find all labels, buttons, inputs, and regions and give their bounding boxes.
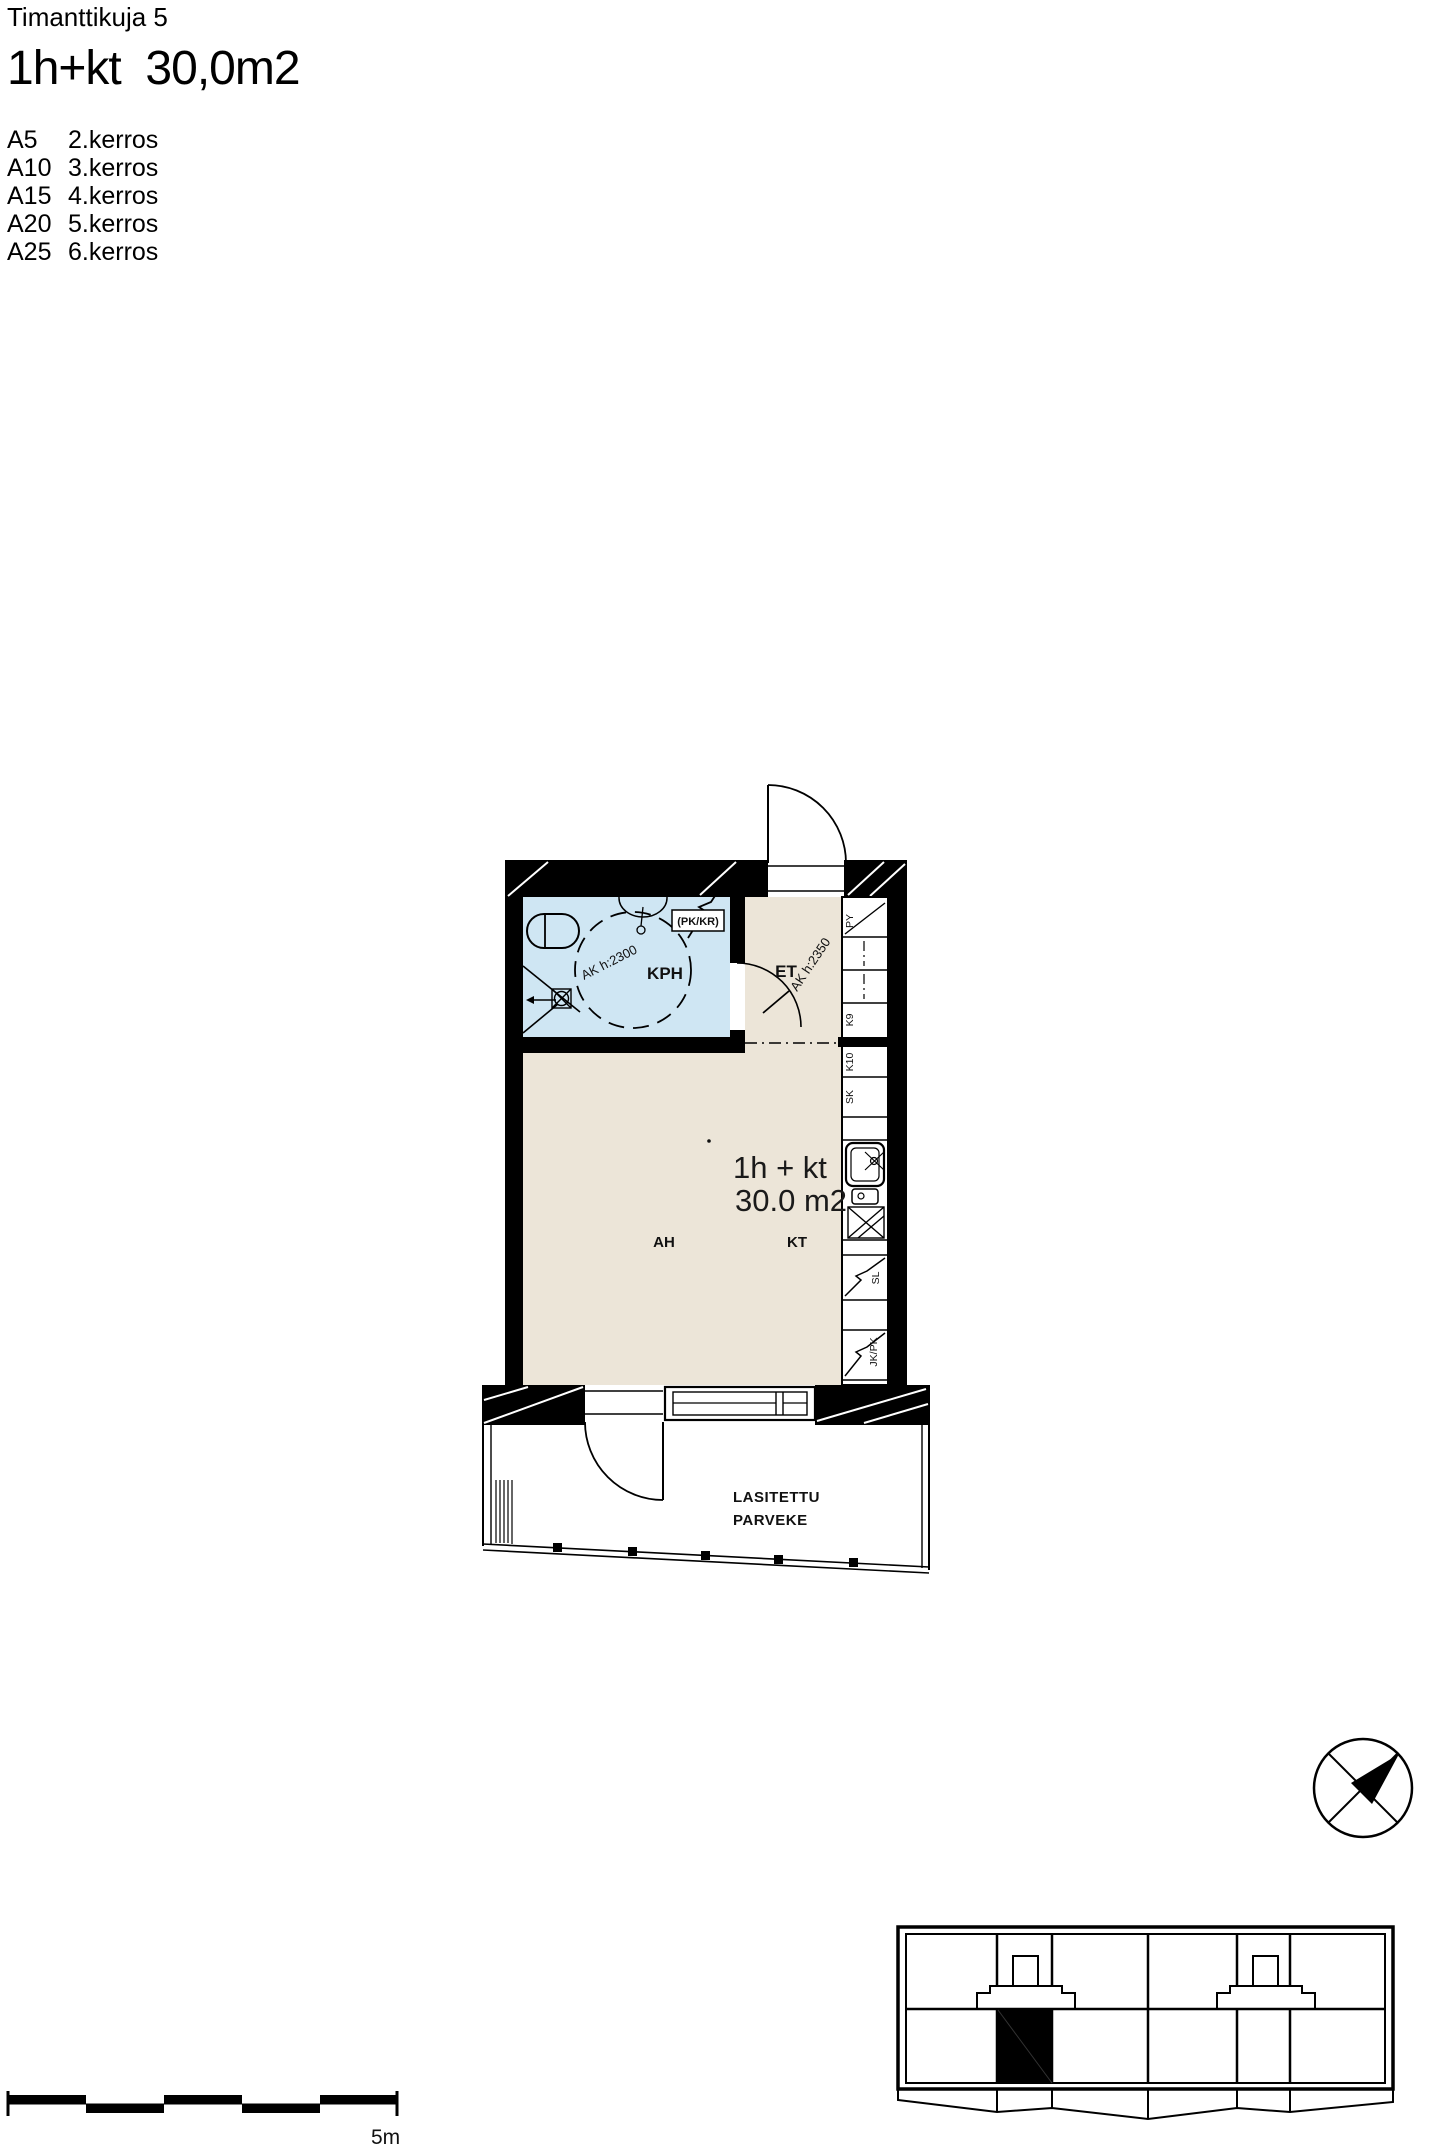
cabinet-k10-label: K10 [844,1053,856,1072]
area-label-line2: 30.0 m2 [735,1183,847,1218]
wall-kph-partition-upper [730,860,745,963]
area-label-line1: 1h + kt [733,1150,827,1185]
entrance-jamb [758,860,768,897]
wall-left [505,860,523,1405]
cabinet-sk-label: SK [844,1090,856,1104]
wall-kitchen-stub [838,1037,888,1047]
building-key-plan [898,1927,1393,2119]
scale-bar: 5m [8,2091,400,2145]
center-dot [707,1139,711,1143]
balcony-label-line2: PARVEKE [733,1512,808,1529]
cabinet-k9-label: K9 [844,1013,856,1026]
balcony-door-swing-arc [585,1422,663,1500]
floor-fills [523,897,888,1385]
living-label: AH [653,1234,675,1251]
compass-north-arrow [1351,1754,1399,1804]
stair-core [977,1956,1315,2008]
bathroom-label: KPH [647,964,683,983]
scale-bar-label: 5m [371,2126,400,2145]
balcony [483,1425,929,1573]
floorplan-sheet: Timanttikuja 5 1h+kt 30,0m2 A5 2.kerros … [0,0,1440,2145]
wall-right [888,860,907,1405]
balcony-window [665,1387,815,1420]
cabinet-py-label: PY [844,914,856,928]
entrance-door [768,785,846,891]
scale-bar-segments [8,2095,397,2113]
entrance-door-swing-arc [768,785,846,863]
cabinet-sl-label: SL [870,1271,882,1284]
living-room-floor [523,1053,842,1385]
floor-plan-drawing: KPH ET AH KT 1h + kt 30.0 m2 (PK/KR) AK … [0,0,1440,2145]
balcony-label-line1: LASITETTU [733,1489,820,1506]
wall-kph-bottom [505,1037,745,1053]
balcony-door [585,1391,663,1500]
glazing-posts [553,1543,858,1567]
balcony-section-hatch [496,1480,512,1544]
key-plan-balcony-strip [898,2089,1393,2119]
washer-reservation-label: (PK/KR) [677,916,719,928]
compass-icon [1314,1739,1412,1837]
cabinet-jkpk-label: JK/PK [868,1337,880,1366]
kitchen-label: KT [787,1234,807,1251]
